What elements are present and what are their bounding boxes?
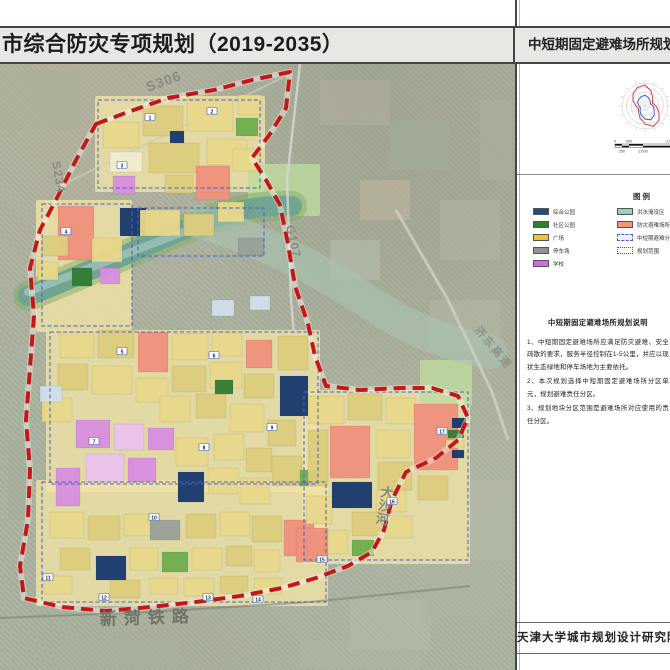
svg-text:0: 0 — [614, 139, 616, 143]
site-number: 11 — [45, 575, 51, 581]
svg-text:2,000: 2,000 — [666, 139, 670, 143]
sheet-title: 市综合防灾专项规划（2019-2035） — [2, 33, 343, 56]
land-parcel — [86, 454, 124, 482]
land-parcel — [150, 578, 178, 594]
land-parcel — [162, 552, 188, 572]
land-parcel — [148, 428, 174, 450]
legend-label: 规划范围 — [637, 247, 659, 255]
legend-item: 学校 — [533, 260, 575, 267]
legend-label: 学校 — [553, 260, 564, 268]
site-number: 14 — [255, 597, 261, 603]
map-label: S234 — [49, 160, 68, 194]
drawing-title-bar: 中短期固定避难场所规划图 — [515, 26, 670, 64]
land-parcel — [92, 238, 122, 262]
land-parcel — [38, 262, 58, 280]
legend-item: 综合公园 — [533, 208, 575, 215]
site-number: 2 — [211, 109, 214, 115]
land-parcel — [196, 394, 226, 418]
land-parcel — [330, 426, 370, 478]
land-parcel — [60, 332, 94, 358]
legend-swatch — [617, 208, 633, 215]
field-patch — [480, 100, 512, 180]
land-parcel — [332, 482, 372, 508]
land-parcel — [376, 430, 410, 458]
land-parcel — [113, 176, 135, 194]
site-number: 4 — [65, 229, 68, 235]
legend-swatch — [617, 234, 633, 241]
land-parcel — [60, 548, 90, 570]
field-patch — [0, 70, 80, 130]
land-parcel — [160, 396, 190, 422]
legend-item: 规划范围 — [617, 247, 670, 254]
land-parcel — [58, 364, 88, 390]
field-patch — [320, 80, 390, 125]
site-number: 1 — [149, 115, 152, 121]
land-parcel — [184, 214, 214, 236]
land-parcel — [138, 332, 168, 372]
land-parcel — [236, 118, 258, 136]
field-patch — [390, 120, 450, 170]
site-number: 6 — [213, 353, 216, 359]
site-number: 15 — [319, 557, 325, 563]
site-number: 10 — [151, 515, 157, 521]
land-parcel — [220, 512, 250, 536]
land-parcel — [212, 300, 234, 316]
plan-sheet: S306S234G107济东高速大沙河新菏铁路12345678910111213… — [0, 0, 670, 670]
legend-swatch — [533, 247, 549, 254]
land-parcel — [140, 210, 180, 236]
land-parcel — [170, 131, 184, 143]
field-patch — [440, 200, 500, 260]
divider-line — [517, 174, 670, 175]
land-parcel — [40, 386, 62, 402]
land-parcel — [172, 334, 208, 360]
legend-column-right: 洪水淹没区防灾避难场所中短期避难分区规划范围 — [617, 208, 670, 260]
note-item: 3、规划地块分区范围是避难场所对应使用的责任分区。 — [527, 403, 669, 428]
legend-label: 洪水淹没区 — [637, 208, 665, 216]
legend-label: 停车场 — [553, 247, 570, 255]
site-number: 16 — [389, 499, 395, 505]
legend-swatch — [617, 247, 633, 254]
site-number: 17 — [439, 429, 445, 435]
notes-body: 1、中短期固定避难场所应满足防灾避难、安全疏散的要求，服务半径控制在1-5公里，… — [527, 337, 669, 428]
land-parcel — [56, 468, 80, 506]
land-parcel — [250, 296, 270, 310]
land-parcel — [114, 424, 144, 450]
info-panel: 05002,0002501,000 图例 综合公园社区公园广场停车场学校 洪水淹… — [515, 0, 670, 670]
land-parcel — [92, 366, 132, 394]
svg-text:250: 250 — [619, 149, 625, 153]
site-number: 9 — [271, 425, 274, 431]
land-parcel — [42, 236, 68, 256]
sheet-title-bar: 市综合防灾专项规划（2019-2035） — [0, 26, 515, 64]
land-parcel — [278, 336, 308, 370]
legend-label: 中短期避难分区 — [637, 234, 670, 242]
land-parcel — [452, 450, 464, 458]
land-parcel — [246, 448, 272, 472]
land-parcel — [308, 396, 344, 424]
legend-column-left: 综合公园社区公园广场停车场学校 — [533, 208, 575, 273]
land-parcel — [238, 238, 264, 256]
land-parcel — [215, 380, 233, 394]
scale-bar: 05002,0002501,000 — [612, 137, 670, 155]
site-number: 7 — [93, 439, 96, 445]
land-parcel — [72, 268, 92, 286]
land-parcel — [254, 550, 280, 572]
land-parcel — [220, 576, 248, 594]
note-item: 2、本次规划选择中短期固定避难场所分区单元，规划避难责任分区。 — [527, 376, 669, 401]
land-parcel — [230, 404, 264, 432]
land-parcel — [50, 512, 84, 538]
land-parcel — [172, 366, 206, 392]
institute-footer: 天津大学城市规划设计研究院 — [517, 622, 670, 654]
map-label: 新菏铁路 — [99, 606, 196, 629]
land-parcel — [165, 175, 193, 193]
legend-swatch — [533, 234, 549, 241]
land-parcel — [100, 268, 120, 284]
urban-zone — [420, 360, 472, 406]
planning-map-drawing: S306S234G107济东高速大沙河新菏铁路12345678910111213… — [0, 0, 515, 670]
land-parcel — [98, 330, 134, 358]
legend-item: 防灾避难场所 — [617, 221, 670, 228]
legend-item: 停车场 — [533, 247, 575, 254]
land-parcel — [176, 438, 208, 466]
land-parcel — [244, 374, 274, 398]
land-parcel — [192, 548, 222, 570]
site-number: 5 — [121, 349, 124, 355]
land-parcel — [150, 520, 180, 540]
notes-block: 中短期固定避难场所规划说明 1、中短期固定避难场所应满足防灾避难、安全疏散的要求… — [527, 318, 669, 430]
legend-heading: 图例 — [517, 191, 670, 202]
top-margin — [0, 0, 515, 26]
land-parcel — [386, 398, 416, 424]
land-parcel — [418, 476, 448, 500]
legend-label: 防灾避难场所 — [637, 221, 670, 229]
legend-label: 广场 — [553, 234, 564, 242]
field-patch — [360, 180, 410, 220]
land-parcel — [128, 458, 156, 482]
field-patch — [300, 640, 420, 668]
legend-swatch — [533, 221, 549, 228]
land-parcel — [186, 514, 216, 538]
legend-label: 综合公园 — [553, 208, 575, 216]
land-parcel — [348, 394, 382, 420]
legend-item: 广场 — [533, 234, 575, 241]
institute-name: 天津大学城市规划设计研究院 — [517, 632, 670, 644]
land-parcel — [196, 166, 230, 200]
land-parcel — [214, 434, 244, 460]
panel-inner-edge — [519, 0, 520, 670]
land-parcel — [149, 143, 199, 173]
land-parcel — [110, 580, 140, 598]
land-parcel — [306, 496, 332, 524]
drawing-title: 中短期固定避难场所规划图 — [528, 37, 670, 52]
land-parcel — [238, 95, 262, 115]
legend-swatch — [617, 221, 633, 228]
legend-label: 社区公园 — [553, 221, 575, 229]
map-label: S306 — [144, 67, 184, 95]
land-parcel — [88, 516, 120, 540]
legend-swatch — [533, 208, 549, 215]
legend-swatch — [533, 260, 549, 267]
land-parcel — [208, 468, 238, 494]
site-number: 13 — [205, 595, 211, 601]
legend-item: 洪水淹没区 — [617, 208, 670, 215]
notes-heading: 中短期固定避难场所规划说明 — [527, 318, 669, 328]
land-parcel — [96, 556, 126, 580]
site-number: 3 — [121, 163, 124, 169]
land-parcel — [130, 548, 158, 570]
site-number: 12 — [101, 595, 107, 601]
svg-text:500: 500 — [626, 139, 632, 143]
legend-item: 中短期避难分区 — [617, 234, 670, 241]
site-number: 8 — [203, 445, 206, 451]
wind-rose-icon — [619, 80, 670, 132]
svg-text:1,000: 1,000 — [638, 149, 648, 153]
field-patch — [60, 640, 180, 665]
land-parcel — [178, 472, 204, 502]
planning-map: S306S234G107济东高速大沙河新菏铁路12345678910111213… — [0, 0, 515, 670]
land-parcel — [103, 122, 139, 148]
land-parcel — [252, 516, 282, 542]
legend-item: 社区公园 — [533, 221, 575, 228]
land-parcel — [226, 546, 252, 566]
land-parcel — [218, 202, 244, 222]
land-parcel — [246, 340, 272, 368]
note-item: 1、中短期固定避难场所应满足防灾避难、安全疏散的要求，服务半径控制在1-5公里，… — [527, 337, 669, 374]
field-patch — [470, 480, 512, 560]
